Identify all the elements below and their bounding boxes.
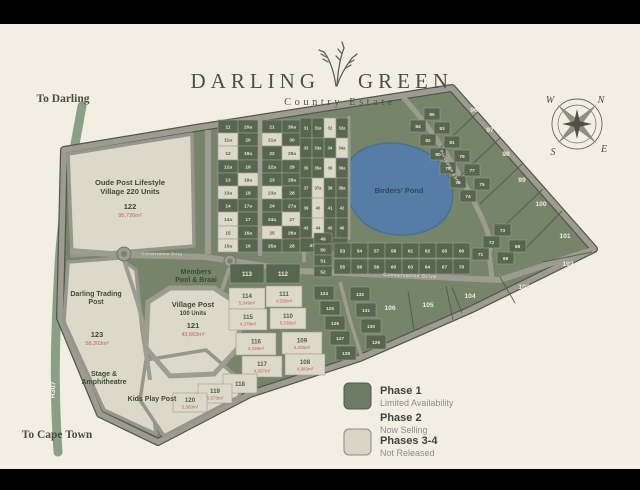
svg-text:84: 84 <box>415 124 421 130</box>
svg-text:81: 81 <box>449 140 455 146</box>
svg-text:12: 12 <box>225 151 231 157</box>
svg-text:14: 14 <box>225 203 231 209</box>
plot-38: 38 <box>324 178 336 198</box>
plot-24a: 24a <box>262 212 282 226</box>
svg-text:126: 126 <box>331 321 339 327</box>
svg-text:20a: 20a <box>244 124 252 130</box>
plot-64: 64 <box>419 259 436 274</box>
svg-text:56: 56 <box>357 264 363 270</box>
trading-post-label-1: Darling Trading <box>70 291 121 298</box>
plot-127: 127 <box>330 331 350 345</box>
trading-post-area: 58,303m² <box>85 341 108 347</box>
title-subtitle: Country Estate <box>284 97 396 108</box>
stage-label-2: Amphitheatre <box>81 379 126 386</box>
svg-text:59: 59 <box>374 264 380 270</box>
plot-17: 17 <box>238 212 258 226</box>
trading-post-number: 123 <box>91 330 104 339</box>
plot-77: 77 <box>464 164 480 176</box>
plot-32: 32 <box>324 118 336 138</box>
plot-18: 18 <box>238 186 258 199</box>
plot-124: 124 <box>314 286 334 300</box>
svg-text:124: 124 <box>320 291 328 297</box>
legend-phase1-sub: Limited Availability <box>380 398 454 408</box>
svg-text:37a: 37a <box>315 186 323 191</box>
estate-map-canvas: R307 R307 <box>0 0 640 490</box>
plot-55: 55 <box>334 259 351 274</box>
svg-text:74: 74 <box>465 194 471 200</box>
svg-text:129: 129 <box>372 340 380 346</box>
plot-14a: 14a <box>218 212 238 226</box>
svg-text:29a: 29a <box>288 151 296 157</box>
plot-114: 1145,049m² <box>229 288 265 309</box>
oude-post-label-2: Village 220 Units <box>100 187 159 196</box>
svg-text:79: 79 <box>459 154 465 160</box>
svg-text:119: 119 <box>210 388 221 395</box>
svg-text:33a: 33a <box>315 146 323 151</box>
plot-35a: 35a <box>312 158 324 178</box>
plot-110-area: 5,035m² <box>280 321 297 326</box>
svg-text:13: 13 <box>225 177 231 183</box>
svg-text:101: 101 <box>559 233 571 240</box>
svg-text:26a: 26a <box>288 230 296 236</box>
svg-text:98: 98 <box>502 151 510 158</box>
plot-111-area: 4,536m² <box>276 299 293 304</box>
svg-text:36a: 36a <box>339 166 347 171</box>
plot-20: 20 <box>238 133 258 146</box>
top-letterbox-bar <box>0 0 640 24</box>
svg-text:14a: 14a <box>224 217 232 223</box>
village-post-label-2: 100 Units <box>180 311 207 317</box>
plot-130: 130 <box>361 319 381 333</box>
legend-phase2-sub: Now Selling <box>380 425 428 435</box>
plot-81: 81 <box>444 136 460 148</box>
svg-text:83: 83 <box>439 126 445 132</box>
plot-32a: 32a <box>336 118 348 138</box>
plot-13a: 13a <box>218 186 238 199</box>
plot-74: 74 <box>460 190 476 202</box>
svg-text:19: 19 <box>245 164 251 170</box>
plot-20a: 20a <box>238 120 258 133</box>
plot-116-area: 4,339m² <box>248 346 265 351</box>
bottom-letterbox-bar <box>0 469 640 490</box>
svg-text:23a: 23a <box>268 190 276 196</box>
svg-text:33: 33 <box>304 146 309 151</box>
plot-59: 59 <box>368 259 385 274</box>
plot-42: 42 <box>336 198 348 218</box>
plot-23a: 23a <box>262 186 282 199</box>
svg-text:44: 44 <box>316 226 321 231</box>
plot-116: 1164,339m² <box>236 333 276 355</box>
plot-108-area: 4,983m² <box>297 367 314 372</box>
svg-text:85: 85 <box>429 112 435 118</box>
title-word-2: GREEN <box>358 69 453 93</box>
svg-text:17a: 17a <box>244 203 252 209</box>
plot-29: 29 <box>282 160 302 173</box>
svg-text:37: 37 <box>304 186 309 191</box>
svg-text:42: 42 <box>340 206 345 211</box>
svg-text:99: 99 <box>518 177 526 184</box>
svg-text:109: 109 <box>297 338 308 345</box>
svg-text:62: 62 <box>425 248 431 254</box>
svg-text:19a: 19a <box>244 151 252 157</box>
plot-128: 128 <box>336 346 356 360</box>
legend-phase2-label: Phase 2 <box>380 412 422 424</box>
plot-113: 113 <box>230 264 264 283</box>
oude-post-area: 95,720m² <box>118 213 141 219</box>
plot-28: 28 <box>282 186 302 199</box>
plot-79: 79 <box>454 150 470 162</box>
plot-21a: 21a <box>262 133 282 146</box>
legend-phase1-label: Phase 1 <box>380 385 422 397</box>
plot-119-area: 5,578m² <box>207 396 224 401</box>
plot-30: 30 <box>282 133 302 146</box>
plot-50: 50 <box>314 244 332 255</box>
svg-text:111: 111 <box>279 291 289 298</box>
plot-43: 43 <box>300 218 312 238</box>
plot-106: 106 <box>384 305 396 312</box>
svg-text:18a: 18a <box>244 177 252 183</box>
svg-text:24a: 24a <box>268 217 276 223</box>
svg-text:55: 55 <box>340 264 346 270</box>
kids-play-label: Kids Play Post <box>128 396 177 403</box>
legend-phase34-label: Phases 3-4 <box>380 435 438 447</box>
svg-text:113: 113 <box>242 271 253 278</box>
svg-text:36: 36 <box>328 166 333 171</box>
plot-125: 125 <box>320 301 340 315</box>
svg-text:49: 49 <box>320 236 326 242</box>
plot-126: 126 <box>325 316 345 330</box>
plot-25: 25 <box>262 226 282 239</box>
svg-text:68: 68 <box>515 244 521 250</box>
plot-37a: 37a <box>312 178 324 198</box>
plot-96: 96 <box>470 107 478 114</box>
svg-text:28a: 28a <box>288 177 296 183</box>
plot-30a: 30a <box>282 120 302 133</box>
svg-text:52: 52 <box>320 269 326 275</box>
svg-text:120: 120 <box>185 397 196 404</box>
svg-text:118: 118 <box>235 381 246 388</box>
svg-text:40: 40 <box>316 206 321 211</box>
plot-31: 31 <box>300 118 312 138</box>
plot-70: 70 <box>453 259 470 274</box>
svg-text:75: 75 <box>479 182 485 188</box>
svg-text:67: 67 <box>442 264 448 270</box>
plot-36: 36 <box>324 158 336 178</box>
svg-text:110: 110 <box>283 313 294 320</box>
village-post-number: 121 <box>187 321 200 330</box>
plot-51: 51 <box>314 255 332 266</box>
svg-text:97: 97 <box>486 127 494 134</box>
plot-73: 73 <box>494 224 511 236</box>
plot-19a: 19a <box>238 146 258 160</box>
plot-23: 23 <box>262 173 282 186</box>
svg-text:114: 114 <box>242 293 253 300</box>
svg-text:132: 132 <box>356 292 364 298</box>
compass-s: S <box>551 147 556 158</box>
plot-38a: 38a <box>336 178 348 198</box>
svg-text:70: 70 <box>459 264 465 270</box>
svg-text:50: 50 <box>320 247 326 253</box>
plot-11a: 11a <box>218 133 238 146</box>
plot-115: 1154,378m² <box>229 309 267 330</box>
svg-text:104: 104 <box>464 293 476 300</box>
estate-map-page: R307 R307 <box>0 0 640 490</box>
to-darling-label: To Darling <box>37 93 90 105</box>
plot-21: 21 <box>262 120 282 133</box>
svg-text:15a: 15a <box>224 243 232 249</box>
svg-text:100: 100 <box>535 201 547 208</box>
svg-text:23: 23 <box>269 177 275 183</box>
svg-text:35a: 35a <box>315 166 323 171</box>
compass-n: N <box>597 95 606 106</box>
svg-text:64: 64 <box>425 264 431 270</box>
plot-99: 99 <box>518 177 526 184</box>
plot-120-area: 5,560m² <box>182 405 199 410</box>
svg-text:51: 51 <box>320 258 326 264</box>
plot-28a: 28a <box>282 173 302 186</box>
svg-text:103: 103 <box>518 284 530 291</box>
svg-text:46: 46 <box>340 226 345 231</box>
plot-27a: 27a <box>282 199 302 212</box>
plot-49: 49 <box>314 233 332 244</box>
svg-text:71: 71 <box>478 252 484 258</box>
plot-34: 34 <box>324 138 336 158</box>
svg-text:31: 31 <box>304 126 309 131</box>
svg-text:20: 20 <box>245 137 251 143</box>
conservation-drive-west-label: Conservation Drive <box>141 252 182 257</box>
svg-text:128: 128 <box>342 351 350 357</box>
svg-text:58: 58 <box>391 248 397 254</box>
plot-12a: 12a <box>218 160 238 173</box>
plot-83: 83 <box>434 122 450 134</box>
svg-text:26: 26 <box>289 243 295 249</box>
svg-text:43: 43 <box>304 226 309 231</box>
plot-53: 53 <box>334 243 351 258</box>
plot-63: 63 <box>402 259 419 274</box>
svg-text:35: 35 <box>304 166 309 171</box>
svg-text:16: 16 <box>245 243 251 249</box>
plot-33a: 33a <box>312 138 324 158</box>
plot-108: 1084,983m² <box>285 354 325 375</box>
plot-13: 13 <box>218 173 238 186</box>
plot-68: 68 <box>509 240 526 252</box>
plot-98: 98 <box>502 151 510 158</box>
plot-71: 71 <box>472 248 489 260</box>
svg-text:61: 61 <box>408 248 414 254</box>
svg-text:96: 96 <box>470 107 478 114</box>
svg-text:13a: 13a <box>224 190 232 196</box>
svg-text:32a: 32a <box>339 126 347 131</box>
svg-text:127: 127 <box>336 336 344 342</box>
svg-text:102: 102 <box>562 261 574 268</box>
svg-text:115: 115 <box>243 314 254 321</box>
plot-85: 85 <box>424 108 440 120</box>
svg-text:63: 63 <box>408 264 414 270</box>
plot-67: 67 <box>436 259 453 274</box>
svg-text:28: 28 <box>289 190 295 196</box>
svg-text:82: 82 <box>425 138 431 144</box>
svg-text:21: 21 <box>269 124 275 130</box>
svg-text:22: 22 <box>269 151 275 157</box>
svg-text:66: 66 <box>459 248 465 254</box>
svg-text:24: 24 <box>269 203 275 209</box>
svg-text:112: 112 <box>278 271 289 278</box>
svg-text:11: 11 <box>225 124 230 130</box>
svg-text:73: 73 <box>500 228 506 234</box>
svg-text:77: 77 <box>469 168 475 174</box>
plot-115-area: 4,378m² <box>240 322 257 327</box>
svg-text:15: 15 <box>225 230 231 236</box>
members-label-1: Members <box>181 269 212 276</box>
members-label-2: Pool & Braai <box>175 277 217 284</box>
compass-e: E <box>600 144 607 155</box>
plot-27: 27 <box>282 212 302 226</box>
svg-text:25: 25 <box>269 230 275 236</box>
plot-109-area: 5,325m² <box>294 345 311 350</box>
svg-text:12a: 12a <box>224 164 232 170</box>
plot-84: 84 <box>410 120 426 132</box>
plot-18a: 18a <box>238 173 258 186</box>
svg-text:11a: 11a <box>224 137 232 143</box>
plot-65: 65 <box>436 243 453 258</box>
plot-37: 37 <box>300 178 312 198</box>
birders-pond-label: Birders' Pond <box>375 186 424 195</box>
svg-text:105: 105 <box>422 302 434 309</box>
svg-text:16a: 16a <box>244 230 252 236</box>
oude-post-label-1: Oude Post Lifestyle <box>95 178 165 187</box>
plot-69: 69 <box>497 252 514 264</box>
svg-text:106: 106 <box>384 305 396 312</box>
plot-26a: 26a <box>282 226 302 239</box>
plot-120: 1205,560m² <box>173 393 207 412</box>
plot-110: 1105,035m² <box>270 308 306 329</box>
plot-39: 39 <box>300 198 312 218</box>
svg-text:131: 131 <box>362 308 370 314</box>
plot-12: 12 <box>218 146 238 160</box>
plot-129: 129 <box>366 335 386 349</box>
plot-29a: 29a <box>282 146 302 160</box>
svg-text:25a: 25a <box>268 243 276 249</box>
svg-text:29: 29 <box>289 164 295 170</box>
plot-14: 14 <box>218 199 238 212</box>
svg-text:17: 17 <box>245 217 251 223</box>
plot-56: 56 <box>351 259 368 274</box>
svg-text:18: 18 <box>245 190 251 196</box>
plot-66: 66 <box>453 243 470 258</box>
svg-text:117: 117 <box>257 361 268 368</box>
plot-22a: 22a <box>262 160 282 173</box>
svg-text:32: 32 <box>328 126 333 131</box>
village-post-area: 43,663m² <box>181 332 204 338</box>
svg-text:125: 125 <box>326 306 334 312</box>
plot-15a: 15a <box>218 239 238 252</box>
r307-label-lower: R307 <box>50 381 58 398</box>
plot-35: 35 <box>300 158 312 178</box>
svg-text:69: 69 <box>503 256 509 262</box>
legend-phase34-sub: Not Released <box>380 448 435 458</box>
plot-102: 102 <box>562 261 574 268</box>
svg-text:54: 54 <box>357 248 363 254</box>
plot-117-area: 4,507m² <box>254 369 271 374</box>
svg-text:130: 130 <box>367 324 375 330</box>
plot-103: 103 <box>518 284 530 291</box>
plot-104: 104 <box>464 293 476 300</box>
plot-105: 105 <box>422 302 434 309</box>
plot-15: 15 <box>218 226 238 239</box>
svg-text:38: 38 <box>328 186 333 191</box>
stage-label-1: Stage & <box>91 371 117 378</box>
svg-text:34: 34 <box>328 146 333 151</box>
plot-97: 97 <box>486 127 494 134</box>
svg-text:108: 108 <box>300 359 311 366</box>
svg-text:116: 116 <box>251 339 262 346</box>
svg-text:30: 30 <box>289 137 295 143</box>
village-post-label-1: Village Post <box>172 300 215 309</box>
svg-text:21a: 21a <box>268 137 276 143</box>
title-word-1: DARLING <box>191 69 321 93</box>
plot-111: 1114,536m² <box>266 286 302 307</box>
plot-11: 11 <box>218 120 238 133</box>
plot-41: 41 <box>324 198 336 218</box>
plot-16a: 16a <box>238 226 258 239</box>
plot-75: 75 <box>474 178 490 190</box>
plot-34a: 34a <box>336 138 348 158</box>
plot-19: 19 <box>238 160 258 173</box>
trading-post-label-2: Post <box>88 299 104 306</box>
legend-swatch-phase1 <box>344 383 371 409</box>
svg-text:53: 53 <box>340 248 346 254</box>
svg-text:60: 60 <box>391 264 397 270</box>
svg-text:65: 65 <box>442 248 448 254</box>
svg-text:27a: 27a <box>288 203 296 209</box>
plot-58: 58 <box>385 243 402 258</box>
plot-17a: 17a <box>238 199 258 212</box>
plot-25a: 25a <box>262 239 282 252</box>
plot-26: 26 <box>282 239 302 252</box>
plot-100: 100 <box>535 201 547 208</box>
svg-text:45: 45 <box>328 226 333 231</box>
plot-40: 40 <box>312 198 324 218</box>
svg-text:27: 27 <box>289 217 295 223</box>
plot-109: 1095,325m² <box>282 332 322 354</box>
plot-132: 132 <box>350 287 370 301</box>
plot-82: 82 <box>420 134 436 146</box>
svg-text:57: 57 <box>374 248 380 254</box>
plot-52: 52 <box>314 266 332 277</box>
plot-31a: 31a <box>312 118 324 138</box>
svg-text:31a: 31a <box>315 126 323 131</box>
plot-101: 101 <box>559 233 571 240</box>
plot-61: 61 <box>402 243 419 258</box>
svg-text:41: 41 <box>328 206 333 211</box>
plot-16: 16 <box>238 239 258 252</box>
svg-text:38a: 38a <box>339 186 347 191</box>
plot-33: 33 <box>300 138 312 158</box>
svg-text:22a: 22a <box>268 164 276 170</box>
svg-text:72: 72 <box>489 240 495 246</box>
plot-24: 24 <box>262 199 282 212</box>
plot-112: 112 <box>266 264 300 283</box>
oude-post-number: 122 <box>124 202 137 211</box>
to-cape-town-label: To Cape Town <box>22 429 93 441</box>
plot-131: 131 <box>356 303 376 317</box>
plot-72: 72 <box>483 236 500 248</box>
plot-36a: 36a <box>336 158 348 178</box>
legend-swatch-phase34 <box>344 429 371 455</box>
svg-text:30a: 30a <box>288 124 296 130</box>
plot-57: 57 <box>368 243 385 258</box>
plot-54: 54 <box>351 243 368 258</box>
